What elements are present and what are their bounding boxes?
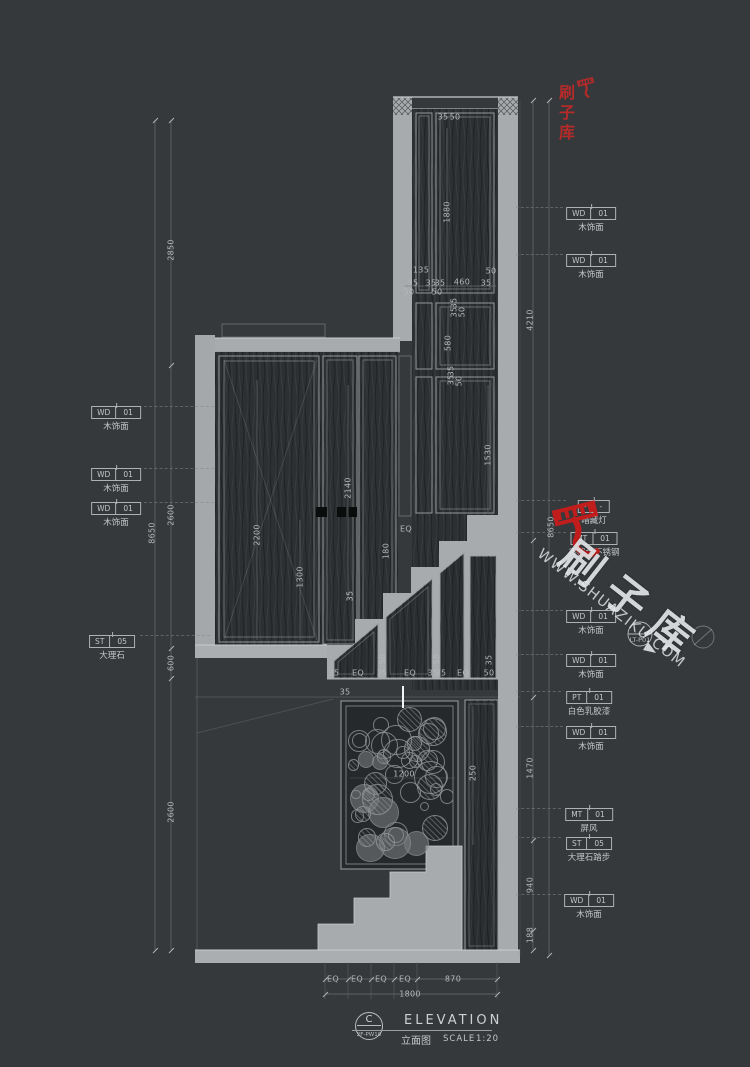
scale-label: SCALE [443,1034,475,1044]
mosaic-circle [351,809,364,822]
pull-handle [402,686,404,708]
material-name: 木饰面 [564,908,614,920]
dimension-label: 1200 [393,770,415,779]
floor-band-bottom [195,950,520,963]
material-label-wd: WD01木饰面 [91,400,141,432]
material-code: WD [92,503,116,514]
material-label-wd: WD01木饰面 [566,720,616,752]
leader-line [144,406,214,407]
dimension-label: 50 [486,267,497,276]
dimension-label: 1880 [443,201,452,223]
material-name: 大理石踏步 [566,851,612,863]
mosaic-circles-layer [346,706,453,864]
wall-pier-left [195,335,215,657]
scale-value: 1:20 [476,1034,499,1044]
dimension-label: 4210 [526,309,535,331]
material-code: WD [567,255,591,266]
leader-line [516,610,563,611]
detail-code: 2F-PW10 [356,1032,382,1038]
material-number: 01 [591,655,615,666]
leader-line [516,500,566,501]
dimension-label: 1470 [526,757,535,779]
mosaic-circle [358,751,375,768]
material-label-wd: WD01木饰面 [566,248,616,280]
cad-elevation-drawing: 2850865026006002600421086501470940188188… [0,0,750,1067]
dimension-label: 50 [450,113,461,122]
wall-pier-right [498,97,518,955]
material-code-box: ST05 [89,635,135,648]
mosaic-circle [376,833,395,852]
material-code-box: WD01 [566,207,616,220]
material-code-box: ST05 [566,837,612,850]
material-name: 大理石 [89,649,135,661]
material-code: ST [567,838,587,849]
dimension-label: 2200 [253,524,262,546]
dimension-label: 50 [432,288,443,297]
material-number: 05 [110,636,134,647]
material-name: 木饰面 [566,268,616,280]
floor-band-mid [195,645,327,658]
dimension-label: 50 [379,654,388,665]
material-label-wd: WD01木饰面 [566,201,616,233]
dimension-label: EQ [399,975,411,984]
dimension-label: 35 [481,279,492,288]
dimension-label: 2850 [167,239,176,261]
material-code: MT [566,809,588,820]
material-code: WD [567,611,591,622]
material-code: WD [565,895,589,906]
leader-line [140,635,210,636]
dimension-label: EQ [400,525,412,534]
dimension-label: 35 [408,279,419,288]
material-code: WD [92,407,116,418]
leader-line [516,654,563,655]
material-code: ST [90,636,110,647]
title-underline [352,1030,492,1031]
leader-line [516,207,563,208]
material-code-box: WD01 [566,654,616,667]
dimension-label: 2600 [167,504,176,526]
dimension-label: 135 [413,266,429,275]
mosaic-circle [364,772,387,795]
drawing-linework [0,0,750,1067]
dimension-label: 35 [435,279,446,288]
leader-line [516,894,561,895]
material-code-box: WD01 [566,726,616,739]
leader-line [144,502,214,503]
material-number: 01 [591,727,615,738]
material-number: 01 [587,692,611,703]
wall-pier-shaft-left [393,97,412,341]
dimension-label: 35 [485,655,494,666]
mosaic-circle [400,782,421,803]
mosaic-circle [422,815,448,841]
dimension-label: 50 [484,669,495,678]
material-code-box: PT01 [566,691,612,704]
dimension-label: 50 [458,307,467,318]
drawing-title-cn: 立面图 [401,1032,431,1047]
dimension-label: 35 [346,591,355,602]
dimension-label: 1300 [296,566,305,588]
material-code-box: WD01 [91,406,141,419]
dimension-label: 35 [329,669,340,678]
dimension-label: EQ [457,669,469,678]
material-code: PT [567,692,587,703]
material-label-st: ST05大理石踏步 [566,831,612,863]
material-number: 01 [116,407,140,418]
leader-line [516,837,561,838]
mosaic-circle [358,828,376,846]
material-number: 01 [591,255,615,266]
dimension-label: 8650 [148,522,157,544]
material-label-wd: WD01木饰面 [91,496,141,528]
dimension-label: 2140 [344,477,353,499]
material-label-mt: MT01屏风 [565,802,613,834]
material-name: 白色乳胶漆 [566,705,612,717]
dimension-label: 600 [167,655,176,671]
dimension-label: EQ [351,975,363,984]
detail-letter: C [356,1014,382,1025]
dimension-label: 870 [445,975,461,984]
dimension-label: 1800 [399,990,421,999]
material-name: 木饰面 [566,221,616,233]
dimension-label: EQ [327,975,339,984]
leader-line [516,808,561,809]
material-code-box: WD01 [91,502,141,515]
dimension-label: 250 [469,765,478,781]
leader-line [516,691,561,692]
material-code-box: WD01 [91,468,141,481]
material-number: 01 [116,503,140,514]
dimension-label: EQ [375,975,387,984]
drawing-title: ELEVATION [404,1013,502,1028]
material-label-pt: PT01白色乳胶漆 [566,685,612,717]
material-code: WD [567,655,591,666]
material-number: 01 [588,809,612,820]
material-label-wd: WD01木饰面 [564,888,614,920]
material-code: WD [567,208,591,219]
material-name: 木饰面 [91,516,141,528]
material-code-box: MT01 [565,808,613,821]
material-name: 木饰面 [566,668,616,680]
dimension-label: 50 [404,288,415,297]
dimension-label: EQ [404,669,416,678]
material-name: 木饰面 [566,740,616,752]
material-number: 01 [591,208,615,219]
corner-watermark-brand: 刷子库 [556,84,574,144]
material-code-box: WD01 [566,254,616,267]
material-label-wd: WD01木饰面 [91,462,141,494]
dimension-label: 1530 [484,444,493,466]
door-handle [348,507,357,517]
material-label-wd: WD01木饰面 [566,648,616,680]
material-name: 木饰面 [91,420,141,432]
mosaic-circle [381,725,411,755]
dimension-label: 180 [382,543,391,559]
door-handle [337,507,346,517]
material-name: 木饰面 [91,482,141,494]
dimension-label: 50 [433,654,442,665]
detail-reference-bubble: C 2F-PW10 [355,1012,383,1040]
dimension-label: 35 [377,669,388,678]
material-number: 05 [587,838,611,849]
material-label-st: ST05大理石 [89,629,135,661]
dimension-label: 2600 [167,801,176,823]
door-handle [316,507,327,517]
dimension-label: 460 [454,278,470,287]
material-code-box: WD01 [564,894,614,907]
dimension-label: 35 [436,669,447,678]
dimension-label: 580 [444,335,453,351]
dimension-label: 35 [340,688,351,697]
mosaic-circle [420,802,429,811]
material-code: WD [92,469,116,480]
dimension-label: EQ [352,669,364,678]
leader-line [516,254,563,255]
leader-line [516,726,563,727]
dimension-label: 35 [438,113,449,122]
leader-line [144,468,214,469]
dimension-label: 940 [526,877,535,893]
material-number: 01 [116,469,140,480]
dimension-label: 50 [455,376,464,387]
material-number: 01 [589,895,613,906]
mosaic-circle [440,789,453,803]
ceiling-band [215,338,400,352]
material-code: WD [567,727,591,738]
material-name: 木饰面 [566,624,616,636]
